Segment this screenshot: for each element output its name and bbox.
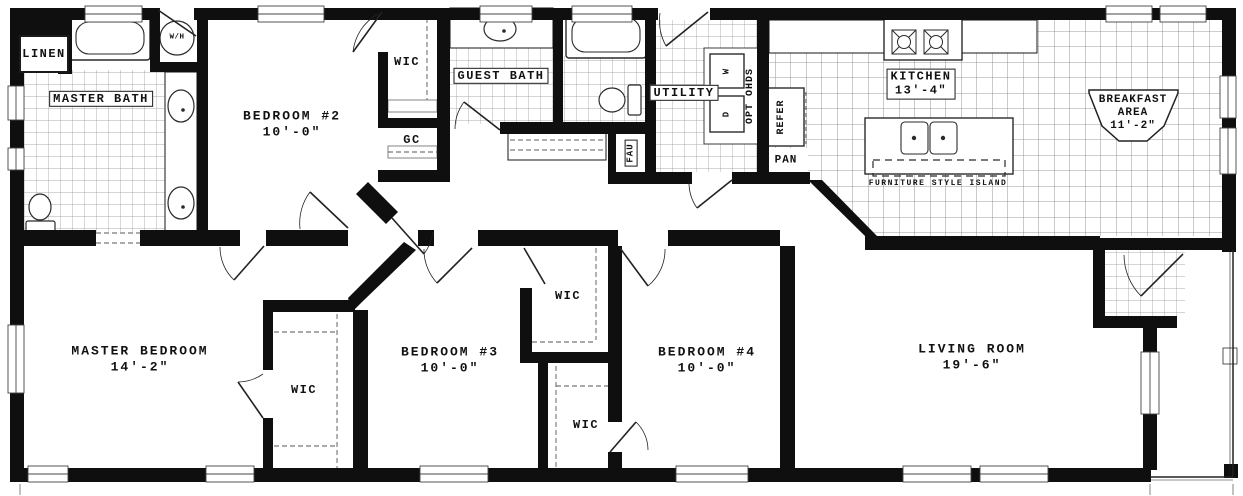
opt-ohds-label: OPT OHDS [745,68,757,124]
wic3-door [524,248,545,284]
bedroom2-label: BEDROOM #2 10'-0" [243,108,341,139]
wic-bedroom3-label: WIC [555,289,581,303]
pantry-label: PAN [775,154,798,167]
kitchen-island [865,118,1013,176]
wic4-door [610,422,648,452]
wic-master-label: WIC [291,383,317,397]
master-bedroom-name: MASTER BEDROOM [71,343,208,359]
floor-plan-drawing [0,0,1243,496]
utility-label: UTILITY [650,85,719,101]
wic-bedroom2-label: WIC [394,55,420,69]
bedroom3-dim: 10'-0" [401,360,499,376]
living-room-name: LIVING ROOM [918,341,1026,357]
breakfast-name: BREAKFAST [1099,94,1167,107]
master-wic-door [238,374,263,418]
ticks [20,484,1233,495]
bedroom2-dim: 10'-0" [243,124,341,140]
washer-label: W [722,68,733,74]
breakfast-name-2: AREA [1099,107,1167,120]
living-room-dim: 19'-6" [918,357,1026,373]
master-bedroom-dim: 14'-2" [71,359,208,375]
master-bedroom-door [220,246,264,280]
floor-plan: LINEN MASTER BATH W/H BEDROOM #2 10'-0" … [0,0,1243,496]
gc-label: GC [403,133,420,147]
bathtub-master [70,16,150,60]
linen-label: LINEN [22,47,66,61]
bedroom4-dim: 10'-0" [658,360,756,376]
kitchen-label: KITCHEN 13'-4" [887,69,956,100]
bedroom3-name: BEDROOM #3 [401,344,499,360]
guest-bath-floor [450,46,553,124]
entry-floor [1103,250,1185,316]
wic-bedroom4-label: WIC [573,418,599,432]
utility-hall-door [689,180,732,208]
breakfast-dim: 11'-2" [1099,121,1167,134]
guest-bath-label: GUEST BATH [453,68,548,84]
refer-label: REFER [776,99,788,134]
bedroom4-label: BEDROOM #4 10'-0" [658,344,756,375]
sink-master-1 [168,90,194,122]
kitchen-dim: 13'-4" [891,84,952,98]
breakfast-label: BREAKFAST AREA 11'-2" [1099,94,1167,134]
sink-master-2 [168,187,194,219]
bedroom3-door [424,248,472,283]
utility-door-gap [658,8,710,20]
bedroom3-label: BEDROOM #3 10'-0" [401,344,499,375]
dryer-label: D [722,111,733,117]
master-bath-label: MASTER BATH [49,91,153,107]
bedroom4-door [620,248,665,286]
fau-label: FAU [625,139,638,166]
living-room-label: LIVING ROOM 19'-6" [918,341,1026,372]
bedroom4-name: BEDROOM #4 [658,344,756,360]
kitchen-name: KITCHEN [891,70,952,84]
water-heater-label: W/H [169,34,184,43]
bedroom2-name: BEDROOM #2 [243,108,341,124]
master-bedroom-label: MASTER BEDROOM 14'-2" [71,343,208,374]
bedroom2-door [300,192,348,229]
island-label: FURNITURE STYLE ISLAND [869,179,1008,189]
